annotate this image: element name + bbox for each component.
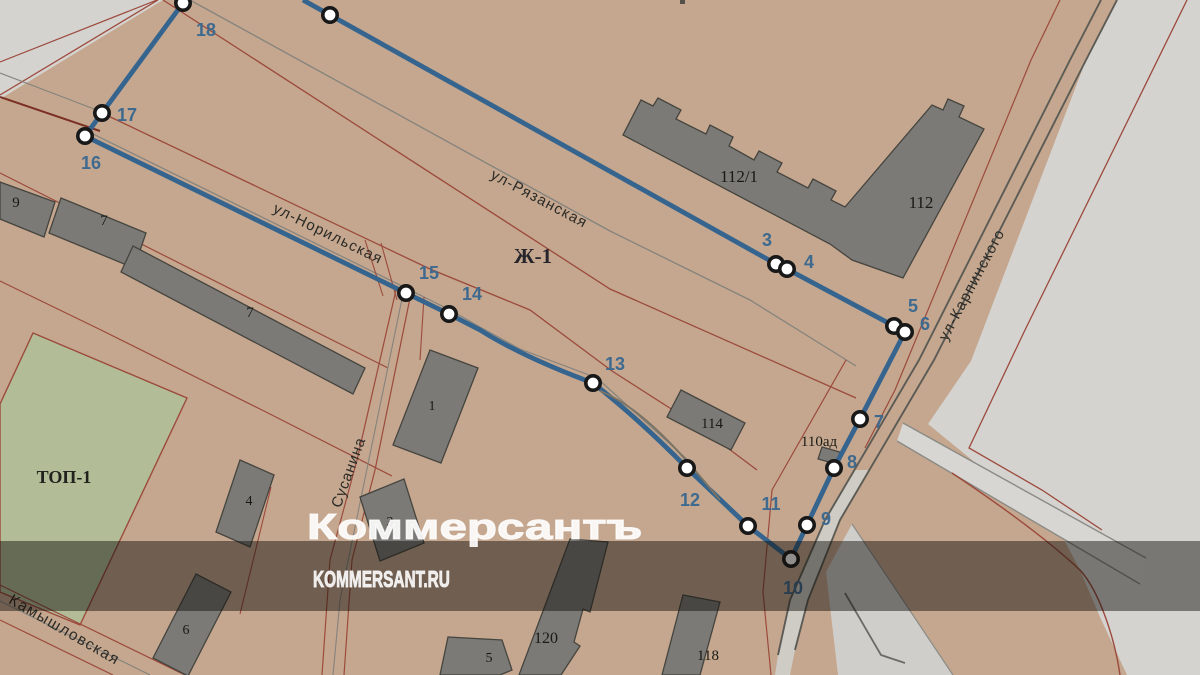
svg-text:5: 5 — [486, 651, 493, 666]
svg-text:12: 12 — [680, 490, 700, 510]
svg-text:16: 16 — [81, 153, 101, 173]
svg-text:4: 4 — [804, 252, 814, 272]
svg-text:11: 11 — [761, 494, 780, 514]
svg-text:ТОП-1: ТОП-1 — [37, 467, 92, 487]
svg-text:112/1: 112/1 — [720, 167, 758, 186]
svg-text:9: 9 — [821, 509, 831, 529]
svg-text:1: 1 — [429, 399, 436, 414]
svg-text:6: 6 — [183, 623, 190, 638]
svg-text:4: 4 — [246, 494, 253, 509]
svg-text:Ж-1: Ж-1 — [514, 244, 552, 268]
svg-text:18: 18 — [196, 20, 216, 40]
svg-text:5: 5 — [908, 296, 918, 316]
svg-text:17: 17 — [117, 105, 137, 125]
svg-text:110ад: 110ад — [801, 434, 838, 450]
svg-text:7: 7 — [874, 412, 884, 432]
svg-text:3: 3 — [762, 230, 772, 250]
svg-text:Коммерсантъ: Коммерсантъ — [307, 507, 642, 547]
svg-text:6: 6 — [920, 314, 930, 334]
svg-text:9: 9 — [12, 195, 20, 211]
svg-text:13: 13 — [605, 354, 625, 374]
svg-text:14: 14 — [462, 284, 482, 304]
svg-text:114: 114 — [701, 416, 723, 432]
svg-text:8: 8 — [847, 452, 857, 472]
svg-text:120: 120 — [534, 630, 558, 647]
svg-text:KOMMERSANT.RU: KOMMERSANT.RU — [313, 567, 450, 593]
svg-text:118: 118 — [697, 648, 719, 664]
svg-text:15: 15 — [419, 263, 439, 283]
svg-text:7: 7 — [246, 305, 254, 321]
svg-text:7: 7 — [100, 213, 108, 229]
svg-text:112: 112 — [909, 193, 934, 212]
